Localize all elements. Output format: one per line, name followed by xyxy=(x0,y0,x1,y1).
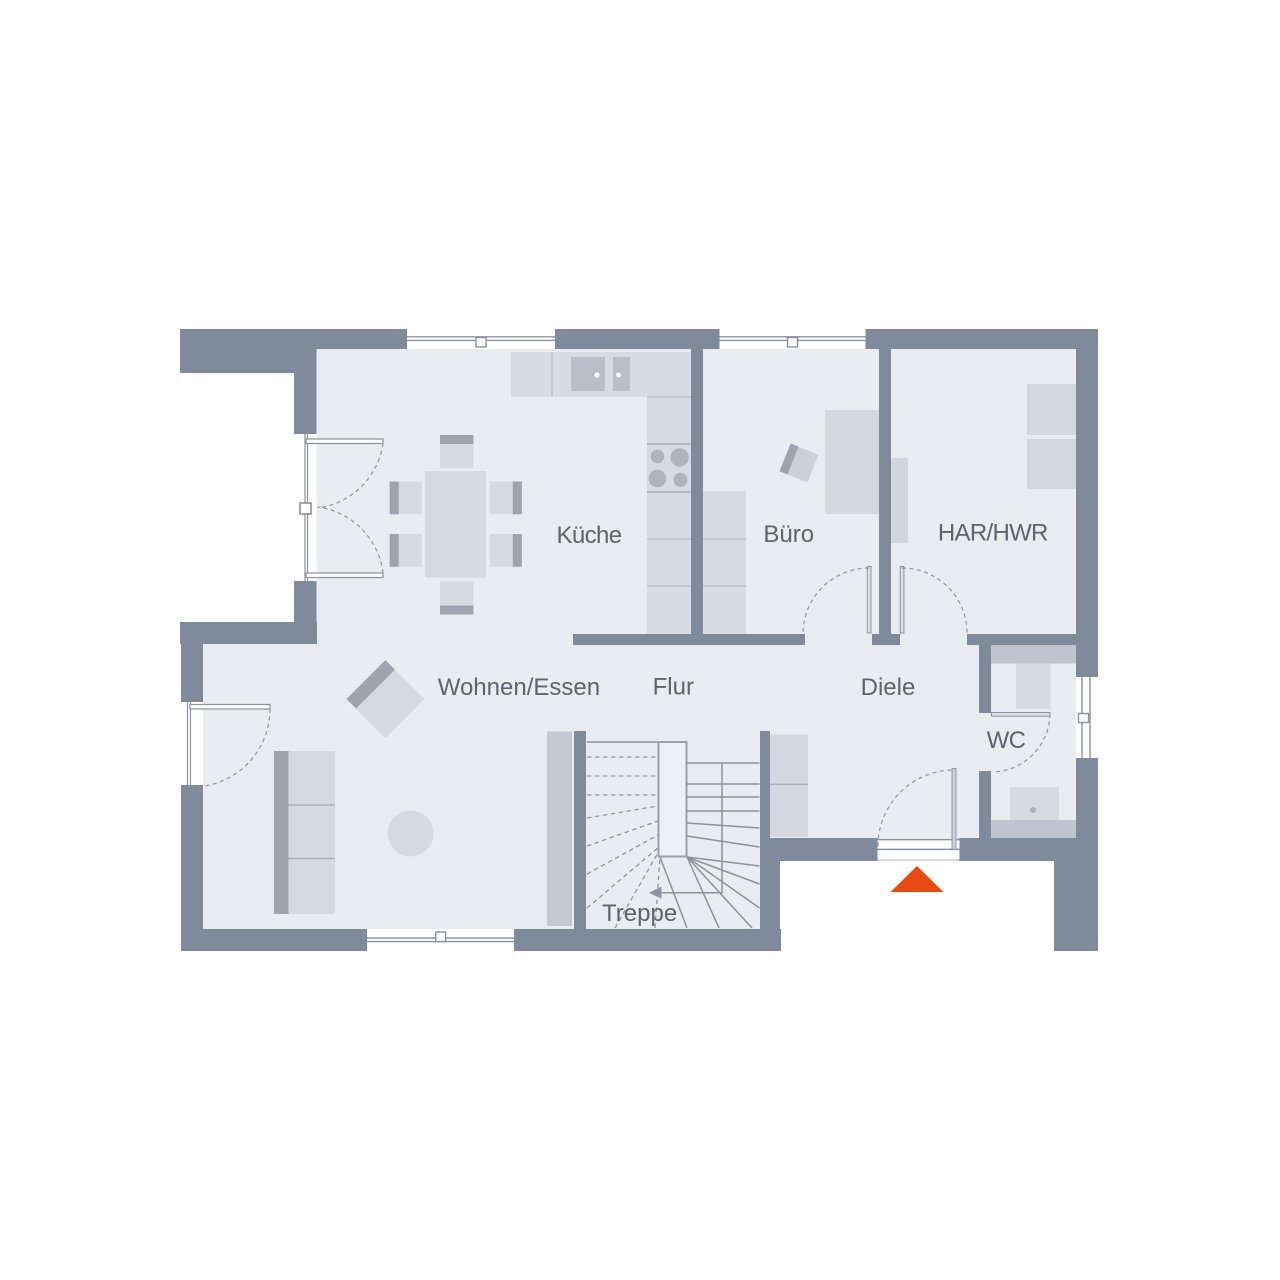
svg-text:Diele: Diele xyxy=(861,674,916,701)
svg-text:Wohnen/Essen: Wohnen/Essen xyxy=(438,674,600,701)
svg-text:Büro: Büro xyxy=(763,521,814,548)
svg-text:WC: WC xyxy=(987,727,1026,754)
svg-text:Küche: Küche xyxy=(556,522,621,549)
svg-text:Treppe: Treppe xyxy=(602,900,677,927)
svg-text:Flur: Flur xyxy=(653,674,694,701)
svg-text:HAR/HWR: HAR/HWR xyxy=(938,520,1048,547)
